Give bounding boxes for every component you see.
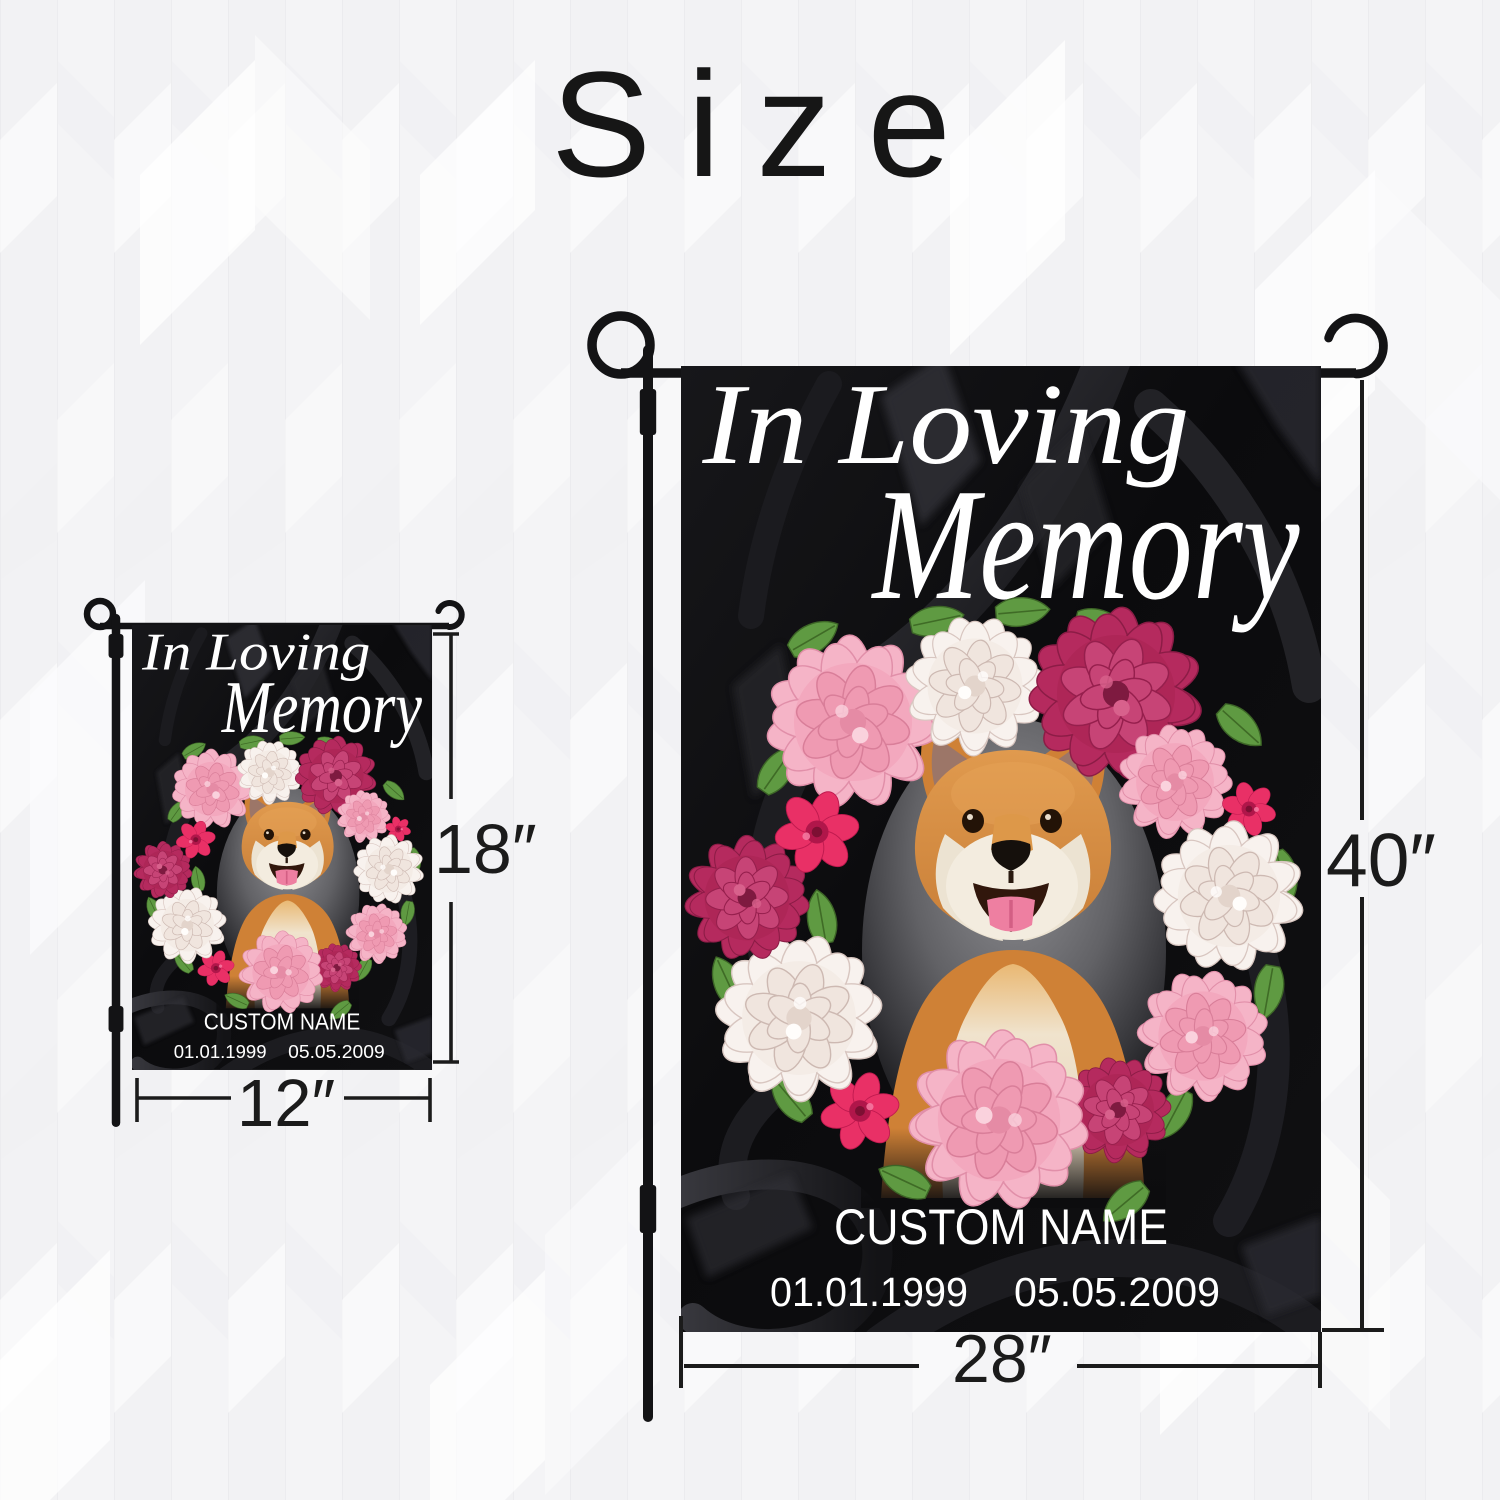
- svg-text:Size: Size: [551, 40, 987, 208]
- svg-text:12″: 12″: [237, 1066, 335, 1141]
- svg-text:18″: 18″: [434, 810, 537, 888]
- svg-text:40″: 40″: [1326, 818, 1436, 902]
- svg-text:28″: 28″: [952, 1321, 1052, 1397]
